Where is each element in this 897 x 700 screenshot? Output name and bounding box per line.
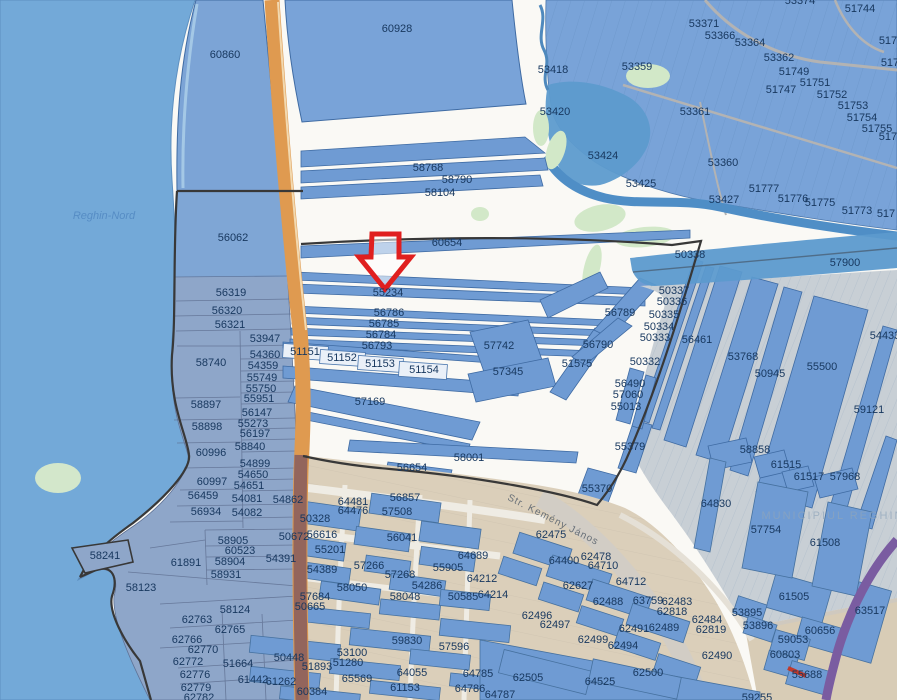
parcel-label-56934: 56934 (191, 506, 222, 518)
parcel-label-63517: 63517 (855, 605, 886, 617)
parcel-label-62772: 62772 (173, 656, 204, 668)
parcel-label-59121: 59121 (854, 404, 885, 416)
parcel-label-51151: 51151 (290, 346, 320, 358)
parcel-label-62499: 62499 (578, 634, 609, 646)
parcel-label-53947: 53947 (250, 333, 281, 345)
parcel-label-64712: 64712 (616, 576, 647, 588)
parcel-label-53361: 53361 (680, 106, 711, 118)
parcel-label-61517: 61517 (794, 471, 825, 483)
parcel-label-51575: 51575 (562, 358, 593, 370)
parcel-label-50672: 50672 (279, 531, 310, 543)
parcel-label-56793: 56793 (362, 340, 393, 352)
parcel-label-53768: 53768 (728, 351, 759, 363)
parcel-label-54433: 54433 (870, 330, 897, 342)
parcel-label-54391: 54391 (266, 553, 297, 565)
parcel-label-55951: 55951 (244, 393, 275, 405)
parcel-label-64525: 64525 (585, 676, 616, 688)
parcel-label-62491: 62491 (619, 623, 650, 635)
parcel-label-51776: 51776 (778, 193, 809, 205)
marsh-green (35, 463, 81, 493)
parcel-label-58241: 58241 (90, 550, 121, 562)
parcel-label-51747: 51747 (766, 84, 797, 96)
parcel-label-64212: 64212 (467, 573, 498, 585)
parcel-label-56857: 56857 (390, 492, 421, 504)
parcel-label-62494: 62494 (608, 640, 639, 652)
parcel-60928 (285, 0, 526, 122)
parcel-label-55688: 55688 (792, 669, 823, 681)
parcel-label-50585: 50585 (448, 591, 479, 603)
parcel-label-55905: 55905 (433, 562, 464, 574)
parcel-label-56319: 56319 (216, 287, 247, 299)
parcel-label-62818: 62818 (657, 606, 688, 618)
parcel-label-50945: 50945 (755, 368, 786, 380)
parcel-label-58898: 58898 (192, 421, 223, 433)
parcel-label-55379: 55379 (615, 441, 646, 453)
parcel-label-53418: 53418 (538, 64, 569, 76)
parcel-label-50338: 50338 (675, 249, 706, 261)
parcel-label-58123: 58123 (126, 582, 157, 594)
parcel-label-59255: 59255 (742, 692, 773, 700)
parcel-label-517: 517 (881, 57, 897, 69)
parcel-label-59830: 59830 (392, 635, 423, 647)
parcel-label-62490: 62490 (702, 650, 733, 662)
parcel-label-56789: 56789 (605, 307, 636, 319)
parcel-label-60656: 60656 (805, 625, 836, 637)
parcel-label-60996: 60996 (196, 447, 227, 459)
parcel-label-56654: 56654 (397, 462, 428, 474)
parcel-label-53374: 53374 (785, 0, 816, 7)
water-name-label: Reghin-Nord (73, 210, 136, 222)
parcel-label-60928: 60928 (382, 23, 413, 35)
parcel-label-53360: 53360 (708, 157, 739, 169)
parcel-label-53366: 53366 (705, 30, 736, 42)
muni-label: MUNICIPIUL REGHIN (762, 510, 897, 522)
parcel-label-55370: 55370 (582, 483, 613, 495)
parcel-label-61442: 61442 (238, 674, 269, 686)
parcel-label-60384: 60384 (297, 686, 328, 698)
parcel-label-58001: 58001 (454, 452, 485, 464)
parcel-label-50665: 50665 (295, 601, 326, 613)
parcel-label-64785: 64785 (463, 668, 494, 680)
parcel-label-57266: 57266 (354, 560, 385, 572)
parcel-label-58124: 58124 (220, 604, 251, 616)
parcel-label-57345: 57345 (493, 366, 524, 378)
parcel-label-54081: 54081 (232, 493, 263, 505)
parcel-label-62497: 62497 (540, 619, 571, 631)
parcel-label-53420: 53420 (540, 106, 571, 118)
parcel-label-61508: 61508 (810, 537, 841, 549)
parcel-label-56321: 56321 (215, 319, 246, 331)
parcel-label-51777: 51777 (749, 183, 780, 195)
parcel-label-53896: 53896 (743, 620, 774, 632)
parcel-label-64214: 64214 (478, 589, 509, 601)
parcel-label-57968: 57968 (830, 471, 861, 483)
parcel-label-57596: 57596 (439, 641, 470, 653)
parcel-label-53425: 53425 (626, 178, 657, 190)
parcel-label-56459: 56459 (188, 490, 219, 502)
parcel-label-54082: 54082 (232, 507, 263, 519)
parcel-label-64055: 64055 (397, 667, 428, 679)
parcel-label-56461: 56461 (682, 334, 713, 346)
parcel-label-60654: 60654 (432, 237, 463, 249)
parcel-label-55234: 55234 (373, 287, 404, 299)
parcel-label-50332: 50332 (630, 356, 661, 368)
parcel-label-51154: 51154 (409, 364, 439, 376)
parcel-label-58104: 58104 (425, 187, 456, 199)
parcel-label-54389: 54389 (307, 564, 338, 576)
parcel-label-62500: 62500 (633, 667, 664, 679)
parcel-label-62489: 62489 (649, 622, 680, 634)
parcel-label-57169: 57169 (355, 396, 386, 408)
parcel-label-57754: 57754 (751, 524, 782, 536)
map-canvas[interactable]: 6086060928533745174453371533665336453362… (0, 0, 897, 700)
parcel-label-53359: 53359 (622, 61, 653, 73)
parcel-label-51773: 51773 (842, 205, 873, 217)
parcel-label-56197: 56197 (240, 428, 271, 440)
parcel-label-50335: 50335 (649, 309, 680, 321)
parcel-label-62765: 62765 (215, 624, 246, 636)
parcel-label-51152: 51152 (327, 352, 357, 364)
parcel-label-53424: 53424 (588, 150, 619, 162)
parcel-label-53427: 53427 (709, 194, 740, 206)
parcel-label-55500: 55500 (807, 361, 838, 373)
parcel-label-58931: 58931 (211, 569, 242, 581)
parcel-label-53364: 53364 (735, 37, 766, 49)
parcel-label-51751: 51751 (800, 77, 831, 89)
parcel-label-51893: 51893 (302, 661, 333, 673)
parcel-label-56320: 56320 (212, 305, 243, 317)
parcel-label-61891: 61891 (171, 557, 202, 569)
parcel-label-50328: 50328 (300, 513, 331, 525)
parcel-label-58048: 58048 (390, 591, 421, 603)
parcel-label-53895: 53895 (732, 607, 763, 619)
parcel-label-51280: 51280 (333, 657, 364, 669)
parcel-label-58897: 58897 (191, 399, 222, 411)
parcel-label-50333: 50333 (640, 332, 671, 344)
parcel-label-64476: 64476 (338, 505, 369, 517)
parcel-label-55013: 55013 (611, 401, 642, 413)
parcel-label-517: 517 (879, 35, 897, 47)
parcel-label-61515: 61515 (771, 459, 802, 471)
parcel-label-58740: 58740 (196, 357, 227, 369)
parcel-label-54651: 54651 (234, 480, 265, 492)
parcel-label-56062: 56062 (218, 232, 249, 244)
parcel-label-55201: 55201 (315, 544, 346, 556)
parcel-label-64786: 64786 (455, 683, 486, 695)
parcel-label-517: 517 (877, 208, 895, 220)
parcel-label-58768: 58768 (413, 162, 444, 174)
parcel-label-61505: 61505 (779, 591, 810, 603)
parcel-label-56041: 56041 (387, 532, 418, 544)
parcel-label-64830: 64830 (701, 498, 732, 510)
parcel-label-58050: 58050 (337, 582, 368, 594)
parcel-label-62770: 62770 (188, 644, 219, 656)
parcel-label-51153: 51153 (365, 358, 395, 370)
parcel-label-58840: 58840 (235, 441, 266, 453)
parcel-label-64689: 64689 (458, 550, 489, 562)
parcel-label-62505: 62505 (513, 672, 544, 684)
parcel-label-61153: 61153 (390, 682, 420, 694)
parcel-label-50448: 50448 (274, 652, 305, 664)
parcel-label-57742: 57742 (484, 340, 515, 352)
parcel-label-54862: 54862 (273, 494, 304, 506)
parcel-label-58790: 58790 (442, 174, 473, 186)
parcel-label-56616: 56616 (307, 529, 338, 541)
parcel-label-61262: 61262 (266, 676, 297, 688)
parcel-label-62488: 62488 (593, 596, 624, 608)
parcel-label-51775: 51775 (805, 197, 836, 209)
parcel-label-62763: 62763 (182, 614, 213, 626)
parcel-label-57508: 57508 (382, 506, 413, 518)
parcel-label-62782: 62782 (184, 692, 215, 700)
parcel-label-50336: 50336 (657, 296, 688, 308)
parcel-label-53371: 53371 (689, 18, 720, 30)
parcel-label-51664: 51664 (223, 658, 254, 670)
parcel-label-62819: 62819 (696, 624, 727, 636)
parcel-label-60997: 60997 (197, 476, 228, 488)
parcel-label-60803: 60803 (770, 649, 801, 661)
parcel-label-65569: 65569 (342, 673, 373, 685)
parcel-label-64400: 64400 (549, 555, 580, 567)
parcel-label-62776: 62776 (180, 669, 211, 681)
parcel-label-59053: 59053 (778, 634, 809, 646)
parcel-label-64787: 64787 (485, 689, 516, 700)
parcel-label-58904: 58904 (215, 556, 246, 568)
parcel-label-56790: 56790 (583, 339, 614, 351)
parcel-label-62627: 62627 (563, 580, 594, 592)
parcel-label-51744: 51744 (845, 3, 876, 15)
parcel-label-58858: 58858 (740, 444, 771, 456)
parcel-label-5175: 5175 (879, 131, 897, 143)
parcel-label-53362: 53362 (764, 52, 795, 64)
parcel-label-60860: 60860 (210, 49, 241, 61)
parcel-label-54359: 54359 (248, 360, 279, 372)
cadastral-map[interactable]: 6086060928533745174453371533665336453362… (0, 0, 897, 700)
parcel-label-64710: 64710 (588, 560, 619, 572)
parcel-label-51753: 51753 (838, 100, 869, 112)
parcel-label-57060: 57060 (613, 389, 644, 401)
parcel-label-57268: 57268 (385, 569, 416, 581)
parcel-label-57900: 57900 (830, 257, 861, 269)
